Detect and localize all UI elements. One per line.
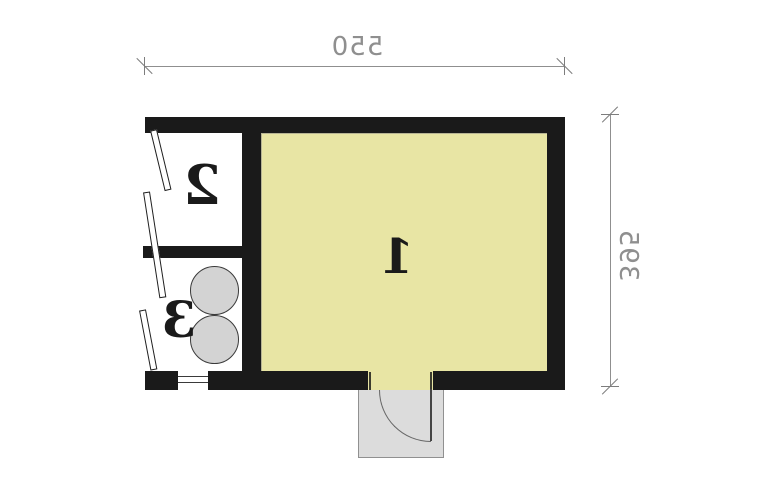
- wall-right: [547, 117, 565, 390]
- window-icon: [178, 371, 208, 390]
- door-leaf-room3-upper-icon: [143, 191, 166, 298]
- room-1-label: 1: [367, 233, 427, 281]
- dimension-width-label: 550: [322, 34, 392, 60]
- wall-bottom-right: [433, 371, 565, 390]
- entrance-jamb-left: [369, 372, 371, 390]
- dimension-height-line: [610, 115, 611, 387]
- wall-bottom-left: [145, 371, 178, 390]
- entrance-opening-floor: [368, 370, 433, 390]
- dimension-height-label: 395: [615, 225, 641, 285]
- wall-bottom-mid: [208, 371, 368, 390]
- door-leaf-room2-icon: [150, 129, 171, 191]
- wall-top: [145, 117, 565, 133]
- wall-partition-vertical: [242, 133, 261, 371]
- floor-plan-canvas: 550 395 1 2 3: [0, 0, 780, 503]
- entrance-jamb-right: [430, 372, 432, 390]
- window-pane-line: [178, 376, 208, 377]
- room-3-label: 3: [149, 294, 209, 344]
- dimension-width-line: [145, 66, 565, 67]
- window-pane-line: [178, 382, 208, 383]
- room-2-label: 2: [172, 159, 232, 211]
